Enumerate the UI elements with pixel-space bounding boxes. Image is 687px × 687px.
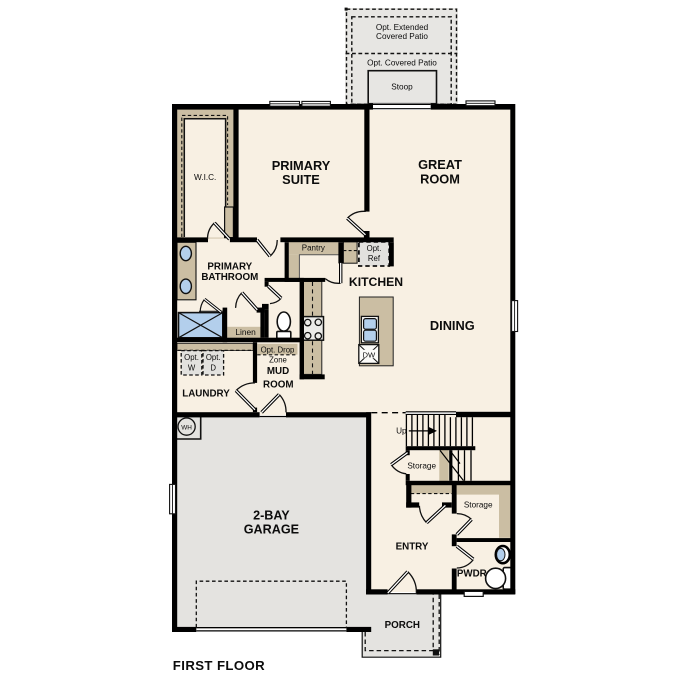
svg-text:Up: Up — [396, 427, 407, 436]
svg-text:W.I.C.: W.I.C. — [194, 173, 216, 182]
svg-text:FIRST FLOOR: FIRST FLOOR — [173, 658, 265, 673]
svg-text:Linen: Linen — [235, 327, 256, 337]
svg-text:MUD: MUD — [267, 366, 289, 377]
svg-text:Opt. Extended: Opt. Extended — [376, 23, 429, 32]
svg-text:W: W — [188, 363, 196, 372]
svg-text:Storage: Storage — [407, 461, 436, 470]
svg-text:ROOM: ROOM — [263, 380, 293, 391]
svg-text:Zone: Zone — [269, 355, 287, 364]
svg-text:Opt. Drop: Opt. Drop — [261, 346, 295, 355]
svg-text:GREAT: GREAT — [418, 157, 462, 172]
svg-text:2-BAY: 2-BAY — [253, 508, 290, 522]
svg-text:PORCH: PORCH — [385, 620, 420, 631]
svg-text:ROOM: ROOM — [420, 172, 460, 187]
svg-text:Covered Patio: Covered Patio — [376, 32, 428, 41]
svg-text:LAUNDRY: LAUNDRY — [182, 388, 230, 399]
svg-text:Storage: Storage — [464, 500, 493, 509]
svg-text:ENTRY: ENTRY — [396, 542, 429, 553]
svg-text:D: D — [210, 363, 216, 372]
svg-text:KITCHEN: KITCHEN — [349, 275, 403, 289]
svg-text:Opt.: Opt. — [184, 353, 199, 362]
svg-text:PWDR: PWDR — [457, 569, 487, 580]
svg-text:DW: DW — [362, 350, 375, 359]
svg-text:WH: WH — [181, 424, 192, 431]
svg-text:SUITE: SUITE — [282, 172, 320, 187]
svg-text:Pantry: Pantry — [302, 243, 325, 252]
svg-text:GARAGE: GARAGE — [244, 523, 299, 537]
svg-text:Opt.: Opt. — [206, 353, 221, 362]
svg-text:Opt.: Opt. — [367, 244, 382, 253]
svg-text:Opt. Covered Patio: Opt. Covered Patio — [367, 58, 437, 67]
svg-text:PRIMARY: PRIMARY — [272, 158, 331, 173]
svg-text:PRIMARY: PRIMARY — [207, 262, 252, 273]
svg-text:Stoop: Stoop — [391, 82, 413, 91]
svg-text:BATHROOM: BATHROOM — [201, 272, 258, 283]
svg-text:Ref: Ref — [368, 254, 381, 263]
svg-text:DINING: DINING — [430, 318, 475, 333]
